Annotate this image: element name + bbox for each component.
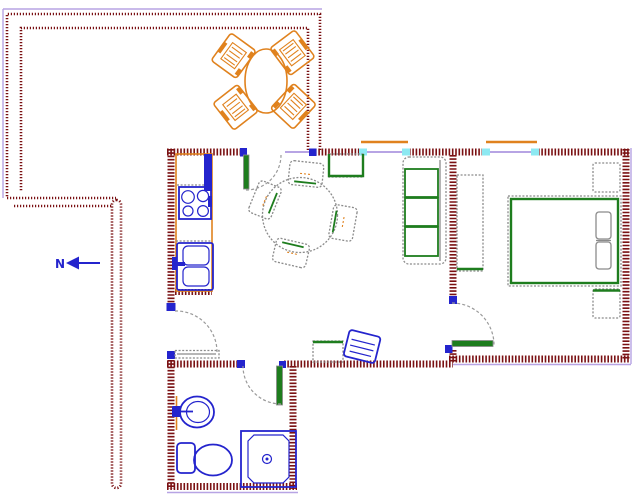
armchair-slats [349,339,375,356]
floor-plan-drawing: N [0,0,632,496]
window-jamb-tick [531,149,539,156]
sink-basin [183,267,209,286]
door-jamb-cap [167,351,175,359]
wardrobe-outline [457,175,483,271]
dining-chair [328,204,358,242]
burner [197,190,208,201]
window-jamb-tick [482,149,490,156]
patio-chair [211,33,256,79]
wardrobe [457,175,483,271]
bedroom [457,163,621,318]
kitchen [172,154,213,291]
pillow [596,242,611,269]
hall-door-swing [175,311,217,352]
basin-tap [172,406,181,417]
toilet-cistern [177,443,195,473]
living-room [313,154,446,363]
door-jamb-cap [445,345,453,353]
floor-plan-canvas: N [0,0,632,496]
entry-door-swing [246,155,281,190]
toilet [177,443,232,476]
sofa [403,157,446,264]
tv-cabinet-edge [329,154,363,176]
dining-chair [288,160,324,187]
sofa-cushion [405,227,438,256]
sink-basin [183,246,209,265]
burner [183,206,193,216]
dining-table [263,178,338,253]
faucet-spout [176,262,185,266]
dining-chair [272,237,311,268]
shower-drain-center [266,458,269,461]
patio-chair [270,83,316,129]
door-jamb-cap [309,149,317,157]
bathroom [172,396,296,487]
nightstand [593,289,620,318]
armchair [343,330,381,364]
bedroom-door-swing [452,303,494,345]
door-jamb-cap [167,303,176,311]
double-bed [508,196,621,286]
pillow [596,212,611,239]
bathroom-door-swing [243,366,281,404]
bedroom-door-leaf [452,341,493,347]
nightstand-outline [593,289,620,318]
bathroom-door-leaf [277,366,283,405]
wash-basin [172,397,214,428]
counter-divider [176,185,212,241]
sofa-cushion [405,198,438,226]
stove-control [208,196,212,207]
north-label: N [55,257,65,271]
patio-chair [213,84,259,130]
tv-cabinet-outline [329,154,363,177]
burner [182,191,195,204]
door-jamb-cap [237,360,245,368]
north-arrow-head [66,257,79,270]
window-jamb-tick [402,149,410,156]
toilet-bowl [194,445,232,476]
sofa-cushion [405,169,438,197]
tv-cabinet [329,154,363,177]
faucet [172,257,177,270]
burner [198,206,209,217]
patio-wall-inner [21,28,308,191]
garden-boundary-wall [112,200,121,488]
entry-door-leaf [244,155,250,189]
nightstand [593,163,620,192]
refrigerator [204,154,212,191]
kitchen-sink [172,243,213,290]
stove [179,187,212,219]
armchair-outline [343,330,381,364]
side-table [313,341,343,362]
north-arrow: N [55,257,100,272]
side-table-outline [313,341,343,362]
shower [241,431,296,487]
patio-dining-set [211,30,316,130]
